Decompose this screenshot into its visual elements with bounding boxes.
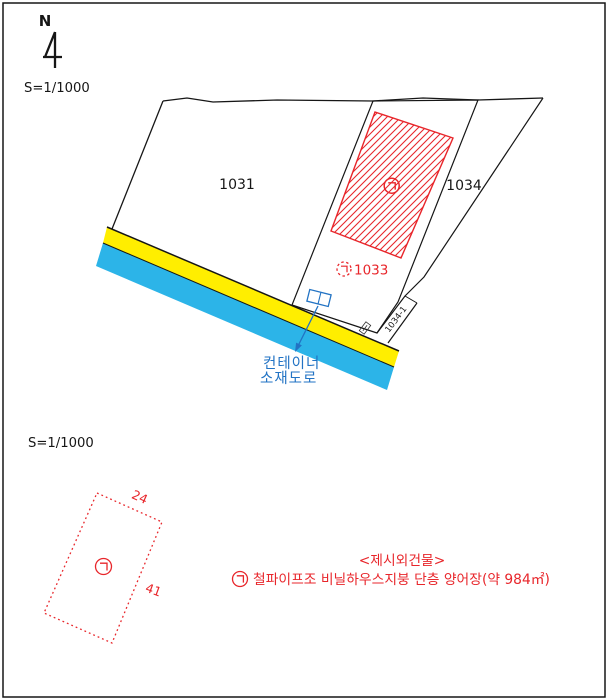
sliver-parcel-top-edge (405, 296, 417, 303)
container-note-line2: 소재도로 (260, 370, 317, 387)
dim-length-label: 41 (144, 580, 164, 600)
dim-width-label: 24 (130, 487, 151, 507)
legend-title: <제시외건물> (359, 553, 446, 569)
building-hatch-area (331, 112, 453, 258)
map-scale-label: S=1/1000 (24, 81, 90, 96)
parcel-1031-label: 1031 (219, 177, 255, 193)
north-arrow-icon (43, 32, 62, 68)
parcel-1034-label: 1034 (446, 178, 482, 194)
sketch-symbol-giyeok-icon (100, 563, 107, 570)
road-mid-edge (103, 243, 394, 367)
parcel-1033-symbol-icon (337, 262, 351, 276)
road-strip-cyan (96, 243, 394, 390)
container-note-line1: 컨테이너 (263, 355, 320, 372)
parcel-1033-symbol-giyeok-icon (341, 266, 347, 272)
sketch-symbol-icon (96, 559, 112, 575)
container-marker (307, 290, 331, 307)
cadastral-drawing: N S=1/1000 1031 1034 1033 1034-1 컨테이너 소재… (0, 0, 608, 700)
legend-symbol-icon (233, 572, 248, 587)
parcel-boundary-left (112, 101, 163, 229)
legend-description: 철파이프조 비닐하우스지붕 단층 양어장(약 984㎡) (253, 572, 550, 588)
tiny-parcel-label-mark (359, 322, 370, 334)
drawing-sheet: N S=1/1000 1031 1034 1033 1034-1 컨테이너 소재… (0, 0, 608, 700)
north-label: N (39, 12, 52, 30)
parcel-1033-number: 1033 (354, 263, 388, 279)
sketch-scale-label: S=1/1000 (28, 436, 94, 451)
building-outline-dashed (44, 493, 162, 643)
parcel-boundary-top (163, 98, 543, 102)
legend-symbol-giyeok-icon (237, 576, 244, 583)
road-strip-yellow (103, 227, 399, 367)
